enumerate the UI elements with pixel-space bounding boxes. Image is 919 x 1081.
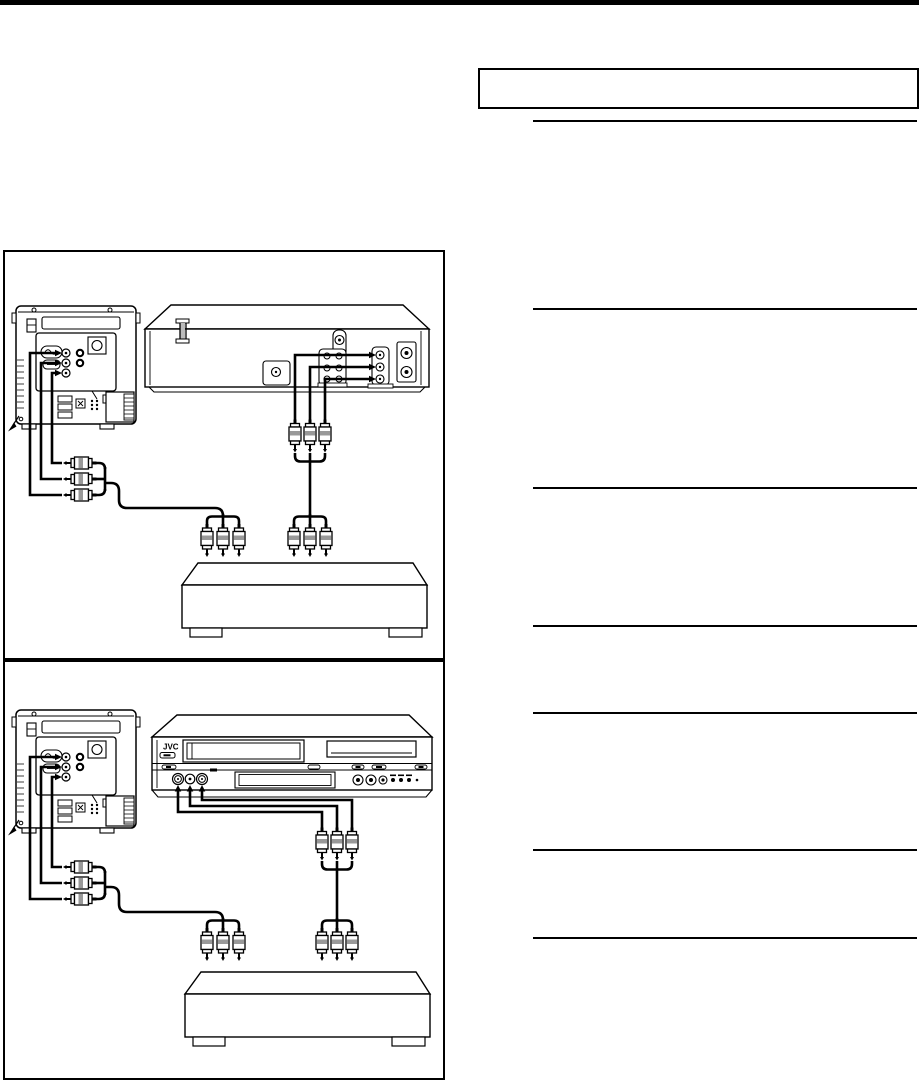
jvc-logo: JVC: [163, 743, 179, 752]
manual-page: JVC: [0, 0, 919, 1081]
connection-diagram-2: JVC: [3, 660, 445, 1081]
display-window: [235, 772, 335, 788]
cassette-slot: [183, 740, 304, 762]
diagram-1-box: [3, 250, 445, 660]
rca-plug-cluster-vcr: [289, 420, 331, 453]
rca-plug-cluster-right: [316, 928, 358, 961]
vcr-antenna-jack-panel: [397, 342, 416, 382]
rule-6: [533, 849, 917, 851]
page-top-bar: [0, 0, 919, 5]
front-av-jacks: [173, 774, 208, 785]
rule-1: [533, 120, 917, 122]
dvd-tray: [327, 741, 416, 757]
rca-plug-cluster-right: [288, 524, 332, 557]
jvc-dvd-vcr-front-panel: JVC: [152, 715, 432, 797]
rule-3: [533, 487, 917, 489]
connection-diagram-1: [3, 250, 445, 660]
vcr-rear-panel: [145, 305, 429, 392]
rule-4: [533, 625, 917, 627]
rule-2: [533, 308, 917, 310]
rule-5: [533, 712, 917, 714]
rca-plug-cluster-dvdvcr: [316, 828, 358, 861]
rule-7: [533, 937, 917, 939]
callout-box: [478, 68, 919, 109]
diagram-2-box: JVC: [3, 660, 445, 1081]
